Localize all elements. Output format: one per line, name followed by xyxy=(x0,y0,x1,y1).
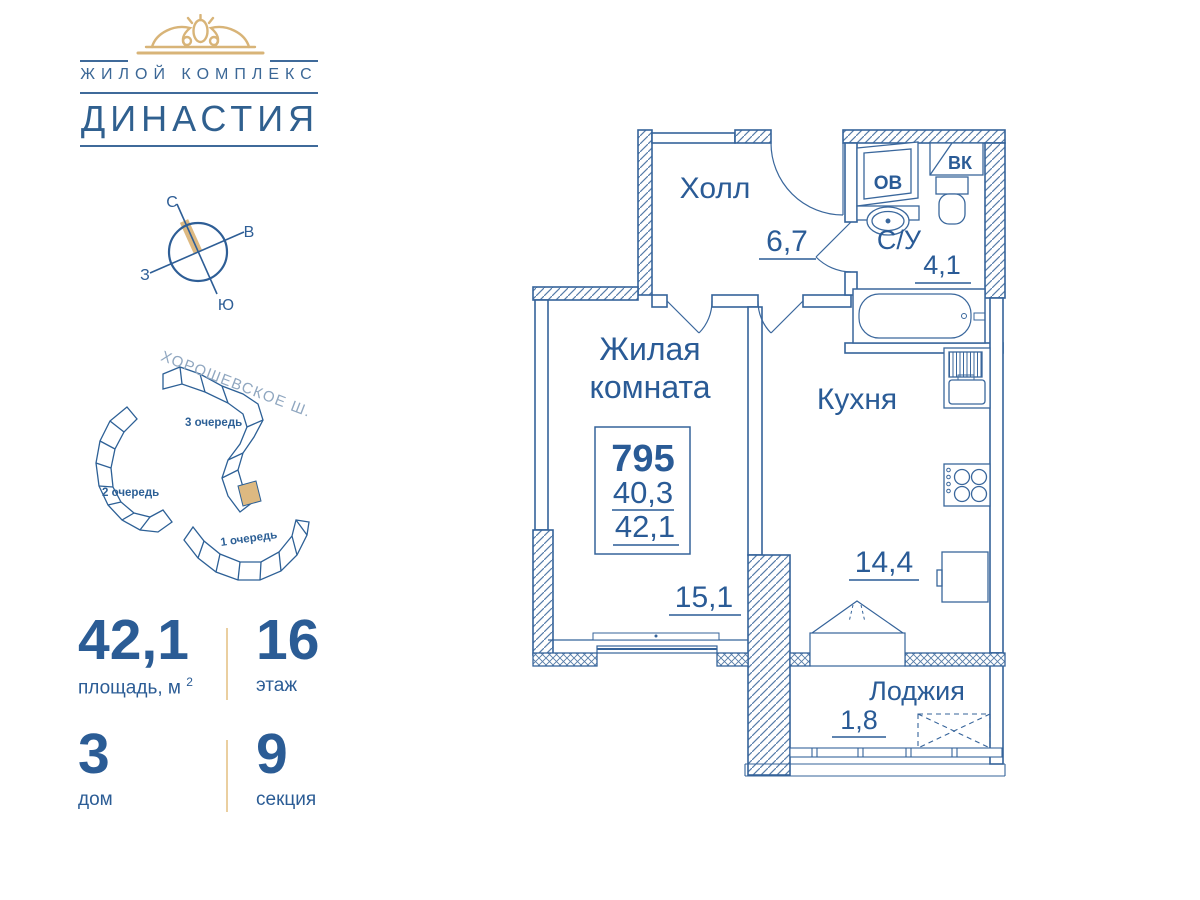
stat-area-label: площадь, м 2 xyxy=(78,675,193,699)
wall-hall-top-thin xyxy=(652,133,735,143)
balcony-door xyxy=(810,601,905,666)
stove-icon xyxy=(944,464,990,506)
stat-house-value: 3 xyxy=(78,726,113,783)
wall-partition-pier xyxy=(748,555,790,775)
living-window-wall xyxy=(533,633,748,666)
wall-entrance-pier xyxy=(735,130,771,143)
stat-section-value: 9 xyxy=(256,726,316,783)
kitchen-sink-icon xyxy=(944,348,990,408)
page: { "logo": { "complex": "ЖИЛОЙ КОМПЛЕКС",… xyxy=(0,0,1200,900)
logo-rule-mid xyxy=(80,92,318,94)
stat-area-sup: 2 xyxy=(186,675,193,689)
shaft-ov-label: ОВ xyxy=(874,173,903,194)
shaft-vk-label: ВК xyxy=(948,153,973,173)
stat-house: 3 дом xyxy=(78,726,113,811)
kitchen-label: Кухня xyxy=(817,383,897,416)
logo-rule-left xyxy=(80,60,128,62)
compass-west: З xyxy=(140,267,150,284)
stat-area: 42,1 площадь, м 2 xyxy=(78,612,193,699)
living-area: 15,1 xyxy=(675,581,733,614)
stat-separator-bottom xyxy=(226,740,228,812)
stat-area-label-text: площадь, м xyxy=(78,677,181,698)
site-plan: ХОРОШЕВСКОЕ Ш. 3 очередь 2 очередь 1 оче… xyxy=(75,340,337,604)
bathroom-door xyxy=(816,222,851,272)
stat-separator-top xyxy=(226,628,228,700)
logo-ornament-icon xyxy=(128,14,273,60)
loggia-area: 1,8 xyxy=(840,705,878,735)
wall-right-lower xyxy=(990,298,1003,653)
hall-label: Холл xyxy=(680,172,751,205)
stat-floor-label: этаж xyxy=(256,675,319,697)
toilet-icon xyxy=(936,177,968,224)
apartment-total-area: 42,1 xyxy=(615,509,675,544)
wall-living-top xyxy=(533,287,638,300)
loggia-hatch-box xyxy=(918,714,990,748)
apartment-living-area: 40,3 xyxy=(613,475,673,510)
loggia-label: Лоджия xyxy=(869,676,965,706)
stat-section-label: секция xyxy=(256,789,316,811)
logo-subtitle: ЖИЛОЙ КОМПЛЕКС xyxy=(80,66,318,84)
wall-hall-left xyxy=(638,130,652,295)
wall-living-left-pier xyxy=(533,530,553,655)
kitchen-fixtures xyxy=(937,348,990,602)
floor-plan: Холл 6,7 С/У 4,1 Жилая комната 15,1 Кухн… xyxy=(515,118,1015,790)
compass-icon: С В З Ю xyxy=(125,185,260,315)
wc-label: С/У xyxy=(877,225,922,255)
phase-3-label: 3 очередь xyxy=(185,417,242,429)
appliance-icon xyxy=(937,552,988,602)
wall-loggia-right xyxy=(990,653,1003,764)
wall-right-upper xyxy=(985,143,1005,298)
building-phase-1 xyxy=(184,520,309,580)
living-room-door xyxy=(667,301,712,333)
stat-house-label: дом xyxy=(78,789,113,811)
logo-title: ДИНАСТИЯ xyxy=(78,98,322,140)
living-label-line1: Жилая xyxy=(599,331,700,367)
apartment-info-box[interactable]: 795 40,3 42,1 xyxy=(595,427,690,554)
wall-top-right xyxy=(843,130,1005,143)
phase-1-label: 1 очередь xyxy=(220,529,278,549)
compass-north: С xyxy=(166,194,178,211)
kitchen-door xyxy=(758,301,803,333)
compass-east: В xyxy=(244,224,255,241)
apartment-number: 795 xyxy=(611,438,674,480)
wall-living-left-thin xyxy=(535,300,548,530)
stat-area-value: 42,1 xyxy=(78,612,193,669)
logo-rule-right xyxy=(270,60,318,62)
stat-floor-value: 16 xyxy=(256,612,319,669)
stat-floor: 16 этаж xyxy=(256,612,319,697)
living-label-line2: комната xyxy=(589,369,710,405)
logo-rule-bottom xyxy=(80,145,318,147)
wall-partition-thin xyxy=(748,307,762,555)
bathtub-icon xyxy=(853,289,985,343)
kitchen-area: 14,4 xyxy=(855,546,913,579)
highlighted-section[interactable] xyxy=(238,481,261,506)
compass-south: Ю xyxy=(218,297,234,314)
wall-wc-left-upper xyxy=(845,143,857,222)
wc-area: 4,1 xyxy=(923,250,961,280)
stat-section: 9 секция xyxy=(256,726,316,811)
phase-2-label: 2 очередь xyxy=(102,487,159,499)
entrance-door xyxy=(771,143,843,215)
hall-area: 6,7 xyxy=(766,225,808,258)
